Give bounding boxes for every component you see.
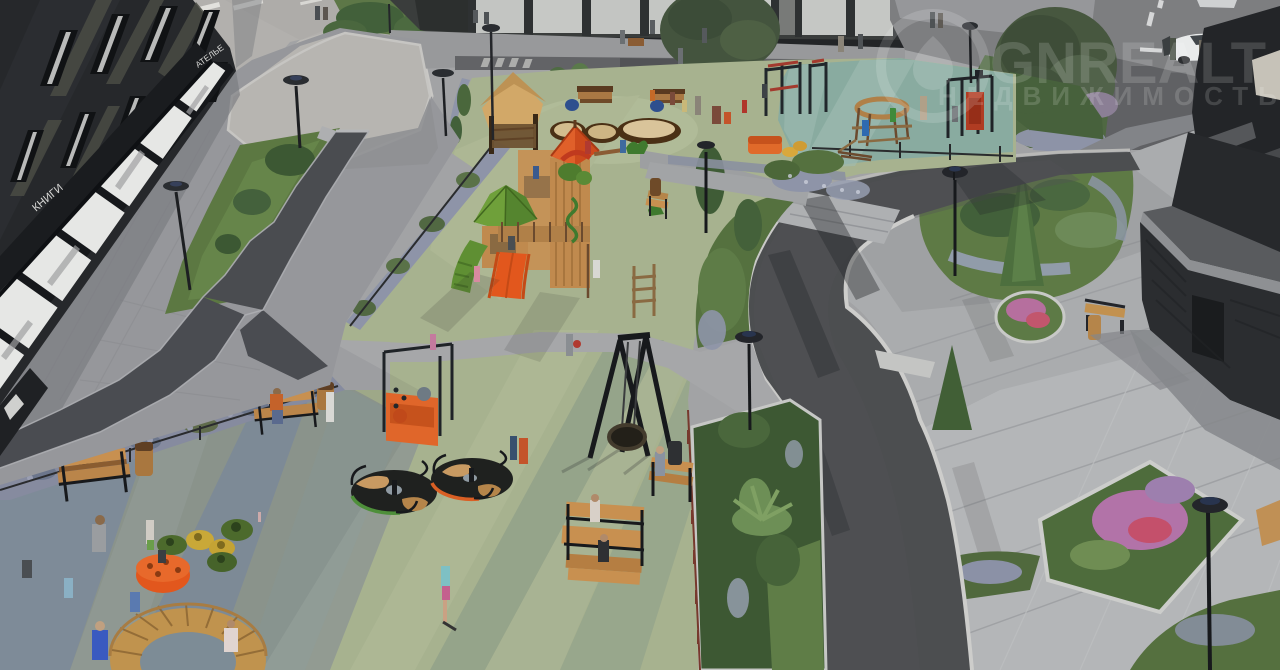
svg-text:НЕДВИЖИМОСТЬ: НЕДВИЖИМОСТЬ — [938, 81, 1280, 111]
